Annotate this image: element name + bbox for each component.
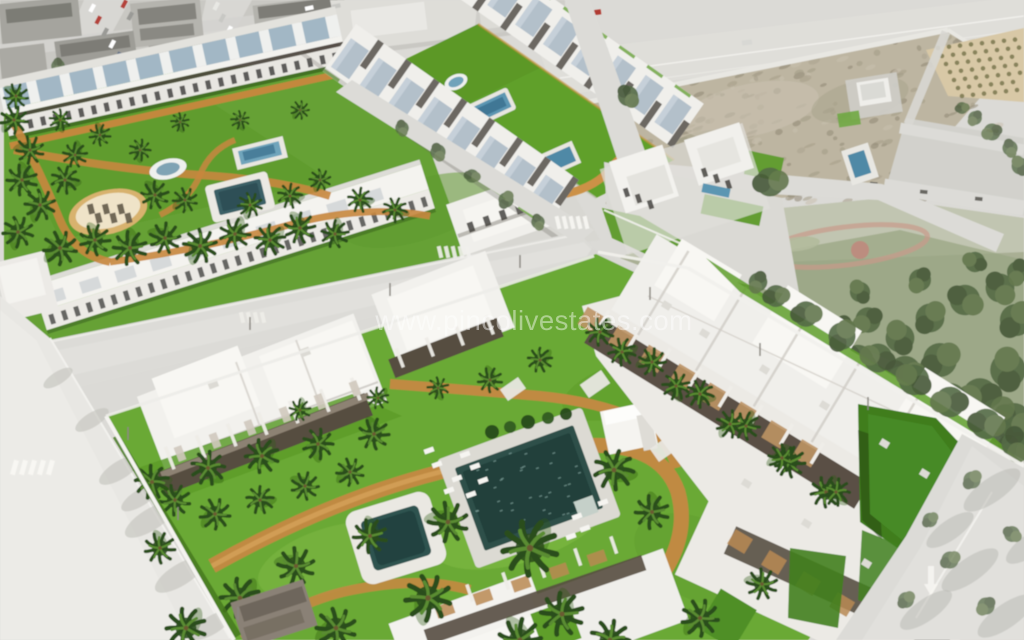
svg-text:www.pincolivestates.com: www.pincolivestates.com: [374, 305, 692, 336]
